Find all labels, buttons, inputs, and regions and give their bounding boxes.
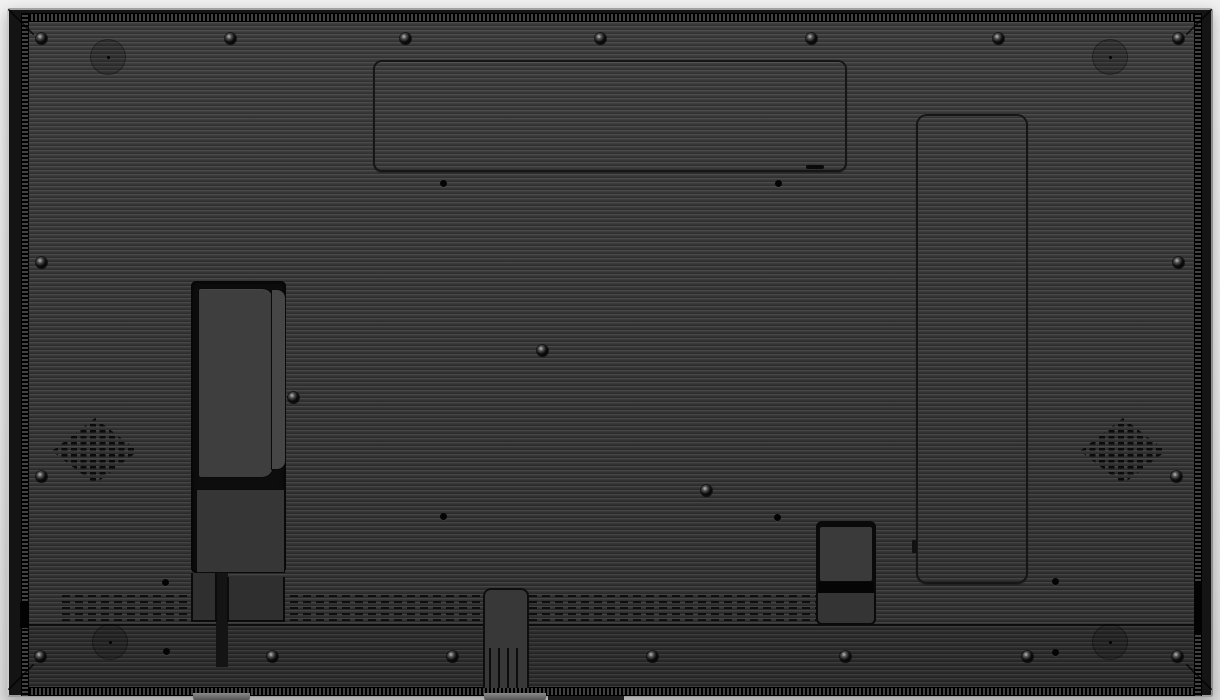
mounting-hole: [163, 648, 170, 655]
mounting-hole: [162, 579, 169, 586]
screw: [537, 345, 548, 356]
screw: [36, 33, 47, 44]
screw: [993, 33, 1004, 44]
mold-pad: [1092, 624, 1128, 660]
screw: [1172, 651, 1183, 662]
screw: [288, 392, 299, 403]
connector-box-lower: [818, 593, 874, 623]
screw: [595, 33, 606, 44]
side-access-panel-notch: [912, 540, 917, 553]
side-access-panel-outline: [916, 114, 1028, 584]
screw: [840, 651, 851, 662]
vent-row-segment: [62, 595, 190, 624]
connector-box-upper: [820, 527, 872, 581]
connector-cover-upper: [198, 288, 274, 478]
connector-box-slot: [818, 582, 874, 593]
mounting-hole: [775, 180, 782, 187]
screw: [647, 651, 658, 662]
screw: [400, 33, 411, 44]
bottom-band: [29, 624, 1194, 688]
screw: [36, 257, 47, 268]
screw: [225, 33, 236, 44]
screw: [1173, 257, 1184, 268]
screw: [1173, 33, 1184, 44]
recess-leg-left: [191, 573, 217, 622]
screw: [267, 651, 278, 662]
screw: [1022, 651, 1033, 662]
mold-pad: [1092, 39, 1128, 75]
screw: [35, 651, 46, 662]
mounting-hole: [774, 514, 781, 521]
top-access-panel-outline: [373, 60, 847, 172]
frame-vent-strip-left: [21, 13, 29, 696]
edge-notch-right: [1194, 583, 1202, 635]
connector-cover-edge: [271, 289, 286, 470]
mold-pad: [90, 39, 126, 75]
screw: [1171, 471, 1182, 482]
screw: [701, 485, 712, 496]
recess-leg-right: [227, 577, 285, 622]
connector-cover-lower: [196, 489, 285, 573]
vent-row-segment: [290, 595, 482, 624]
top-access-panel-latch: [806, 165, 824, 169]
stand-column-slots: [489, 648, 523, 688]
screw: [36, 471, 47, 482]
product-photo-stage: [0, 0, 1220, 700]
screw: [806, 33, 817, 44]
foot-shadow: [548, 696, 624, 700]
foot-left: [193, 693, 250, 700]
frame-vent-strip-top: [29, 13, 1194, 22]
mounting-hole: [1052, 578, 1059, 585]
mounting-hole: [1052, 649, 1059, 656]
vent-row-segment: [529, 595, 816, 624]
foot-center: [484, 693, 546, 700]
mounting-hole: [440, 180, 447, 187]
edge-notch-left: [20, 602, 28, 628]
mold-pad: [92, 624, 128, 660]
screw: [447, 651, 458, 662]
mounting-hole: [440, 513, 447, 520]
